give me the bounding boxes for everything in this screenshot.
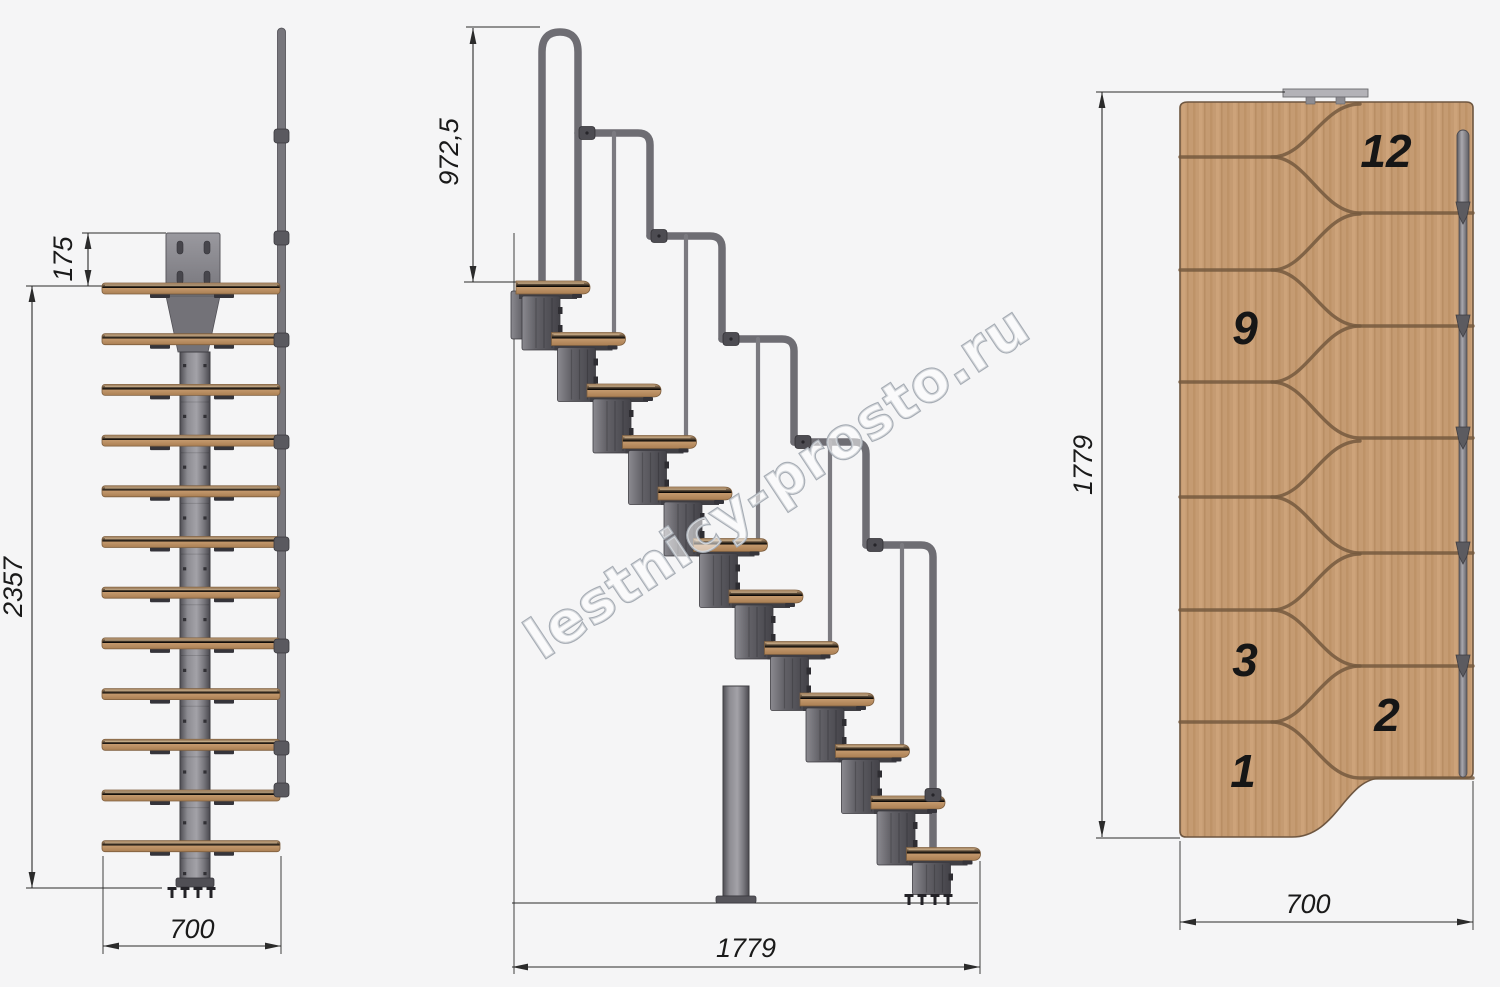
column-bolt (203, 466, 206, 469)
plan-view: 1779 700 12 9 3 2 1 (1068, 89, 1473, 930)
post-collar (274, 537, 289, 551)
support-leg-foot (716, 896, 756, 903)
nose-clamp (572, 294, 582, 298)
nose-clamp (750, 552, 760, 556)
module-bolt (558, 307, 563, 314)
column-bolt (203, 669, 206, 672)
column-bolt (203, 618, 206, 621)
column-bolt (203, 770, 206, 773)
anchor-bolt (934, 894, 937, 905)
module-bolt (665, 462, 670, 469)
tread (102, 283, 280, 294)
drawing-page: 2357 175 700 972,5 1 (0, 0, 1500, 987)
step-number-12: 12 (1360, 125, 1412, 177)
nose-clamp (679, 449, 689, 453)
dimension-arrow (964, 964, 980, 971)
module-bolt (913, 822, 918, 829)
module-bolt (842, 737, 847, 744)
column-bolt (183, 669, 186, 672)
tread (102, 841, 280, 852)
anchor-bolts (168, 887, 216, 898)
collar-bolt (657, 234, 660, 237)
post-collar (274, 333, 289, 347)
anchor-bolt (197, 887, 200, 898)
column-bolt (183, 618, 186, 621)
collar-bolt (873, 543, 876, 546)
module-bolt (665, 480, 670, 487)
column-bolt (183, 466, 186, 469)
dimension-arrow (1099, 92, 1106, 108)
module-bolt (736, 583, 741, 590)
module-bolt (878, 789, 883, 796)
post-collar (274, 231, 289, 245)
dim-rail-height: 972,5 (434, 117, 464, 186)
post-collar (274, 129, 289, 143)
column-bolt (183, 567, 186, 570)
front-view: 2357 175 700 (0, 28, 289, 954)
dim-plan-width: 700 (1285, 889, 1330, 919)
tread (102, 537, 280, 548)
nose-clamp (608, 346, 618, 350)
column-bolt (183, 516, 186, 519)
tread (102, 435, 280, 446)
collar-bolt (931, 793, 934, 796)
module-bolt (594, 377, 599, 384)
dimension-arrow (29, 872, 36, 888)
anchor-bolt (210, 887, 213, 898)
nose-clamp (785, 603, 795, 607)
dimension-arrow (85, 233, 92, 249)
tread (102, 384, 280, 395)
tread (102, 689, 280, 700)
module-bolt (842, 719, 847, 726)
column-bolt (183, 364, 186, 367)
module-bolt (558, 325, 563, 332)
post-collar (274, 435, 289, 449)
staircase-technical-drawing: 2357 175 700 972,5 1 (0, 0, 1500, 987)
dimension-arrow (85, 270, 92, 286)
module-bolt (878, 771, 883, 778)
dimension-arrow (1180, 919, 1196, 926)
column-bolt (203, 364, 206, 367)
post-collar (274, 741, 289, 755)
dim-plan-run: 1779 (1068, 435, 1098, 495)
column-bolt (183, 872, 186, 875)
anchor-bolt (921, 894, 924, 905)
step-number-3: 3 (1232, 634, 1258, 686)
nose-clamp (892, 758, 902, 762)
module-bolt (771, 616, 776, 623)
module-bolt (629, 410, 634, 417)
anchor-bolt (184, 887, 187, 898)
collar-bolt (729, 337, 732, 340)
step-number-1: 1 (1230, 745, 1256, 797)
dimension-arrow (470, 266, 477, 282)
support-leg (723, 686, 749, 896)
dimension-arrow (1099, 821, 1106, 837)
dim-front-width: 700 (169, 914, 214, 944)
anchor-bolt (171, 887, 174, 898)
dimension-arrow (470, 28, 477, 44)
column-bolt (203, 567, 206, 570)
module-bolt (736, 565, 741, 572)
dimension-arrow (103, 943, 119, 950)
column-bolt (203, 720, 206, 723)
column-bolt (203, 821, 206, 824)
step-number-9: 9 (1232, 302, 1258, 354)
nose-clamp (963, 861, 973, 865)
dimension-arrow (1457, 919, 1473, 926)
column-base (176, 878, 214, 887)
tread (102, 486, 280, 497)
column-bolt (183, 415, 186, 418)
collar-bolt (585, 131, 588, 134)
dimension-arrow (29, 286, 36, 302)
column-bolt (183, 720, 186, 723)
column-bolt (203, 516, 206, 519)
dim-bracket-offset: 175 (48, 235, 78, 281)
step-number-2: 2 (1373, 689, 1400, 741)
post-collar (274, 639, 289, 653)
dimension-arrow (265, 943, 281, 950)
module-bolt (807, 668, 812, 675)
nose-clamp (856, 706, 866, 710)
tread (102, 638, 280, 649)
module-bolt (913, 840, 918, 847)
module-bolt (771, 634, 776, 641)
tread (102, 790, 280, 801)
anchor-bolt (947, 894, 950, 905)
tread (102, 587, 280, 598)
anchor-bolt (908, 894, 911, 905)
dim-side-run: 1779 (716, 933, 776, 963)
column-bolt (203, 415, 206, 418)
nose-clamp (643, 397, 653, 401)
dim-total-height: 2357 (0, 556, 28, 618)
nose-clamp (927, 809, 937, 813)
column-bolt (183, 770, 186, 773)
tread (102, 739, 280, 750)
stair-module (913, 863, 951, 895)
tread (102, 334, 280, 345)
module-bolt (949, 874, 954, 881)
module-bolt (629, 428, 634, 435)
post-collar (274, 783, 289, 797)
column-bolt (203, 872, 206, 875)
module-bolt (594, 359, 599, 366)
nose-clamp (821, 655, 831, 659)
column-bolt (183, 821, 186, 824)
module-bolt (807, 686, 812, 693)
